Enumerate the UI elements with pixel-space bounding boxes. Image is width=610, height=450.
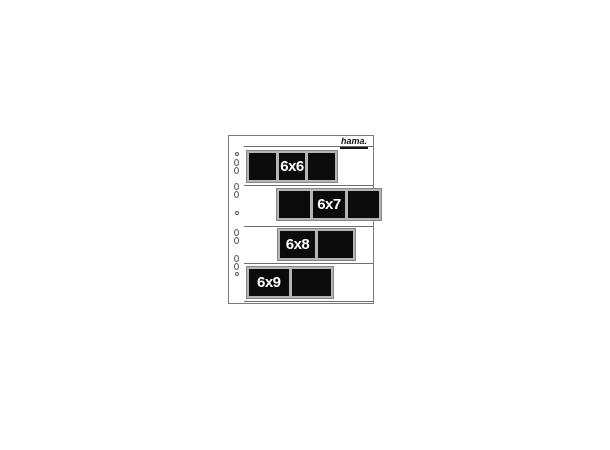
film-format-label: 6x9 bbox=[257, 275, 281, 290]
binder-hole bbox=[234, 255, 239, 262]
film-frame: 6x9 bbox=[249, 269, 289, 296]
row-divider-line bbox=[244, 263, 373, 264]
binder-hole bbox=[235, 152, 239, 156]
binder-hole bbox=[234, 263, 239, 270]
film-frame bbox=[348, 191, 379, 218]
binder-hole bbox=[234, 229, 239, 236]
film-strip-6x6: 6x6 bbox=[246, 150, 338, 183]
binder-hole bbox=[235, 272, 239, 276]
film-strip-6x8: 6x8 bbox=[277, 228, 356, 261]
binder-hole bbox=[234, 183, 239, 190]
row-divider-line bbox=[244, 185, 373, 186]
binder-hole bbox=[234, 237, 239, 244]
film-frame: 6x7 bbox=[313, 191, 344, 218]
film-strip-6x7: 6x7 bbox=[276, 188, 382, 221]
film-strip-6x9: 6x9 bbox=[246, 266, 334, 299]
film-frame bbox=[308, 153, 335, 180]
film-frame bbox=[279, 191, 310, 218]
film-format-label: 6x8 bbox=[286, 237, 310, 252]
sheet-top-seam-line bbox=[244, 146, 373, 147]
film-frame bbox=[292, 269, 332, 296]
binder-holes-column bbox=[229, 136, 244, 303]
binder-hole bbox=[234, 167, 239, 174]
film-frame bbox=[249, 153, 276, 180]
sheet-bottom-seam-line bbox=[244, 301, 373, 302]
hama-logo: hama. bbox=[340, 137, 368, 149]
binder-hole bbox=[235, 211, 239, 215]
binder-hole bbox=[234, 159, 239, 166]
binder-hole bbox=[234, 191, 239, 198]
film-frame: 6x6 bbox=[279, 153, 306, 180]
film-format-label: 6x6 bbox=[280, 159, 304, 174]
film-frame bbox=[318, 231, 353, 258]
product-image-canvas: hama. 6x6 6x7 bbox=[0, 0, 610, 450]
film-frame: 6x8 bbox=[280, 231, 315, 258]
row-divider-line bbox=[244, 226, 373, 227]
film-format-label: 6x7 bbox=[317, 197, 341, 212]
